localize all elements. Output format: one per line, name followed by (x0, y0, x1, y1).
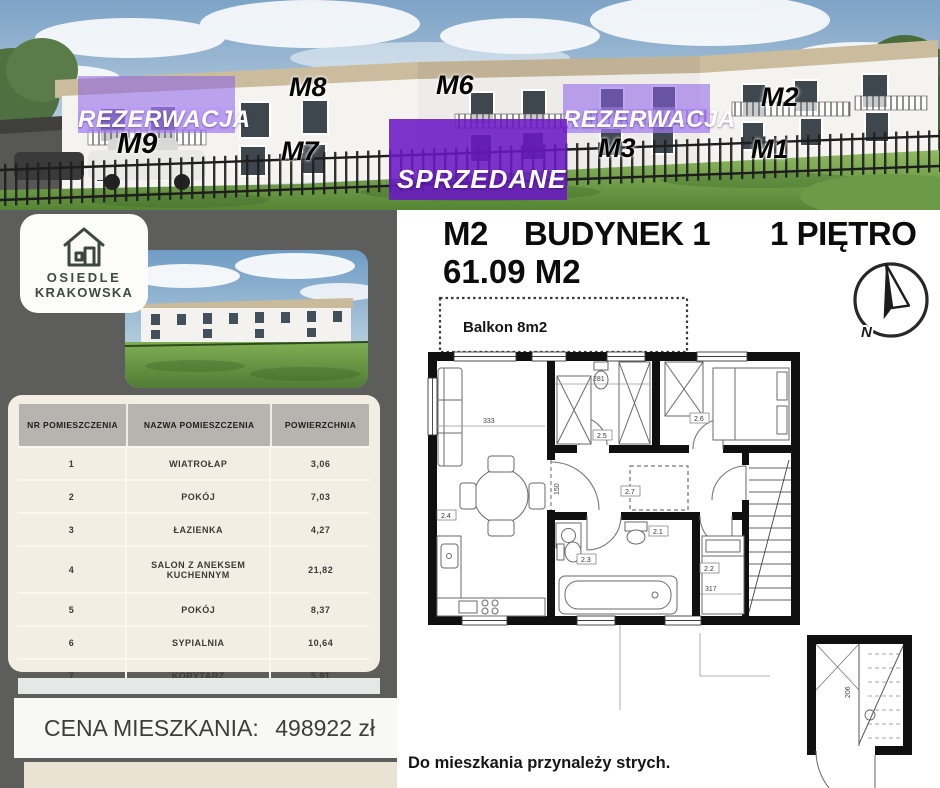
reservation-overlay-right: REZERWACJA (563, 84, 710, 133)
building-render-banner: REZERWACJA REZERWACJA SPRZEDANE M9 M8 M7… (0, 0, 940, 210)
house-logo-icon (61, 226, 107, 268)
cell-nr: 5 (18, 594, 127, 625)
cell-area: 7,03 (271, 481, 370, 512)
balcony-label: Balkon 8m2 (463, 319, 547, 336)
cell-nr: 4 (18, 547, 127, 592)
table-row: 6 SYPIALNIA 10,64 (18, 625, 370, 658)
table-row: 2 POKÓJ 7,03 (18, 479, 370, 512)
unit-label-m3: M3 (598, 133, 636, 164)
estate-photo-art (125, 250, 368, 388)
cell-area: 10,64 (271, 627, 370, 658)
logo-text-line1: OSIEDLE (47, 270, 122, 285)
cell-nr: 2 (18, 481, 127, 512)
divider-band (18, 678, 380, 694)
unit-label-m8: M8 (289, 72, 327, 103)
header-room-area: POWIERZCHNIA (272, 404, 369, 446)
cell-nr: 1 (18, 448, 127, 479)
room-tag: 2.2 (704, 566, 714, 573)
attic-footnote: Do mieszkania przynależy strych. (408, 754, 670, 773)
cell-name: WIATROŁAP (127, 448, 271, 479)
logo-card: OSIEDLE KRAKOWSKA (20, 214, 148, 313)
rooms-table-card: NR POMIESZCZENIA NAZWA POMIESZCZENIA POW… (8, 395, 380, 672)
table-row: 3 ŁAZIENKA 4,27 (18, 512, 370, 545)
cell-name: POKÓJ (127, 594, 271, 625)
flyer-root: REZERWACJA REZERWACJA SPRZEDANE M9 M8 M7… (0, 0, 940, 788)
unit-label-m9: M9 (117, 128, 157, 161)
cell-area: 4,27 (271, 514, 370, 545)
table-header-row: NR POMIESZCZENIA NAZWA POMIESZCZENIA POW… (18, 404, 370, 446)
extension-lines (620, 625, 770, 710)
room-tag: 2.7 (625, 489, 635, 496)
room-tag: 2.5 (597, 433, 607, 440)
dim-label: 333 (483, 418, 495, 425)
sold-overlay: SPRZEDANE (389, 119, 567, 200)
table-row: 5 POKÓJ 8,37 (18, 592, 370, 625)
room-tag: 2.3 (581, 557, 591, 564)
floorplan-drawing: Balkon 8m2 (397, 210, 940, 788)
header-room-name: NAZWA POMIESZCZENIA (128, 404, 270, 446)
dim-label: 317 (705, 586, 717, 593)
cell-area: 3,06 (271, 448, 370, 479)
cell-nr: 3 (18, 514, 127, 545)
cell-area: 8,37 (271, 594, 370, 625)
estate-photo-thumbnail (125, 250, 368, 388)
logo-text-line2: KRAKOWSKA (35, 285, 133, 300)
dim-label: 206 (845, 686, 852, 698)
room-tag: 2.4 (441, 513, 451, 520)
unit-label-m6: M6 (436, 70, 474, 101)
staircase (749, 460, 791, 612)
dim-label: 281 (593, 376, 605, 383)
price-label: CENA MIESZKANIA: (44, 715, 259, 742)
reservation-overlay-left: REZERWACJA (78, 76, 235, 133)
bottom-beige-strip (24, 762, 397, 788)
unit-label-m7: M7 (281, 136, 319, 167)
price-value: 498922 zł (275, 715, 375, 742)
cell-name: SYPIALNIA (127, 627, 271, 658)
unit-label-m2: M2 (761, 82, 799, 113)
cell-name: ŁAZIENKA (127, 514, 271, 545)
unit-label-m1: M1 (751, 134, 789, 165)
sold-label: SPRZEDANE (397, 164, 566, 195)
cell-nr: 6 (18, 627, 127, 658)
attic-door-arc (816, 751, 875, 788)
header-room-number: NR POMIESZCZENIA (19, 404, 126, 446)
price-bar: CENA MIESZKANIA: 498922 zł (14, 698, 397, 758)
table-row: 1 WIATROŁAP 3,06 (18, 446, 370, 479)
dim-label: 150 (554, 483, 561, 495)
room-tag: 2.1 (653, 529, 663, 536)
room-tag: 2.6 (694, 416, 704, 423)
rooms-table: NR POMIESZCZENIA NAZWA POMIESZCZENIA POW… (18, 404, 370, 691)
balcony: Balkon 8m2 (440, 298, 687, 352)
cell-name: POKÓJ (127, 481, 271, 512)
cell-area: 21,82 (271, 547, 370, 592)
table-row: 4 SALON Z ANEKSEM KUCHENNYM 21,82 (18, 545, 370, 592)
attic-plan: 206 (807, 635, 912, 788)
reservation-label: REZERWACJA (563, 107, 710, 133)
furniture (437, 362, 789, 616)
cell-name: SALON Z ANEKSEM KUCHENNYM (127, 547, 271, 592)
info-panel: OSIEDLE KRAKOWSKA NR POMIESZCZENIA NAZWA… (0, 210, 397, 788)
floorplan-panel: M2BUDYNEK 11 PIĘTRO 61.09 M2 N Balkon 8m… (397, 210, 940, 788)
